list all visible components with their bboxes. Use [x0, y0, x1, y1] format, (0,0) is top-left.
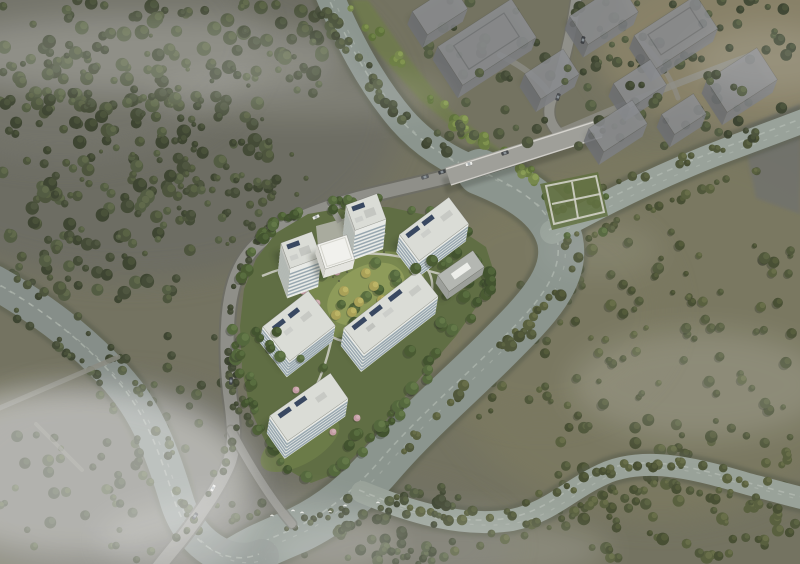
- aerial-masterplan-rendering: Aerial masterplan rendering of riverside…: [0, 0, 800, 564]
- aerial-rendering-canvas: Aerial masterplan rendering of riverside…: [0, 0, 800, 564]
- tonal-overlay: [0, 0, 800, 564]
